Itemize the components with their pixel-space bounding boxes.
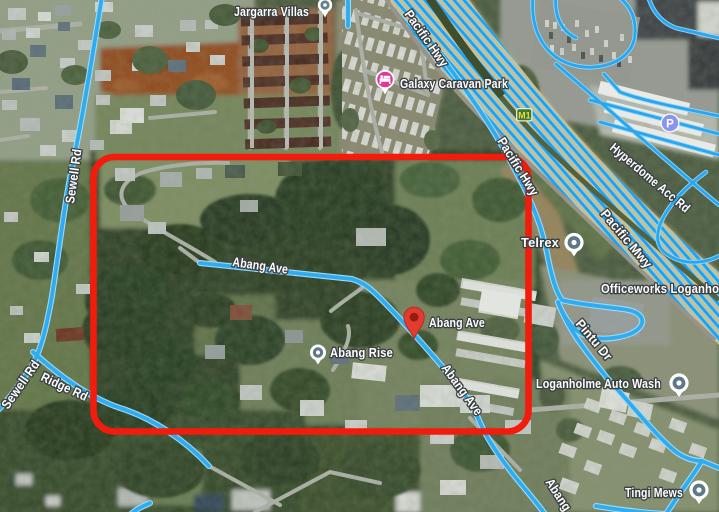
svg-text:Galaxy Caravan Park: Galaxy Caravan Park [400, 76, 508, 91]
svg-text:M1: M1 [518, 111, 530, 121]
svg-text:Officeworks Loganholme: Officeworks Loganholme [601, 281, 719, 296]
svg-text:Loganholme Auto Wash: Loganholme Auto Wash [536, 376, 661, 391]
svg-text:Tingi Mews: Tingi Mews [625, 485, 683, 500]
svg-text:Telrex: Telrex [521, 235, 560, 250]
svg-text:Jargarra Villas: Jargarra Villas [234, 4, 309, 19]
svg-text:Abang Rise: Abang Rise [330, 345, 393, 360]
svg-text:P: P [666, 119, 674, 131]
svg-text:Abang Ave: Abang Ave [429, 315, 485, 330]
